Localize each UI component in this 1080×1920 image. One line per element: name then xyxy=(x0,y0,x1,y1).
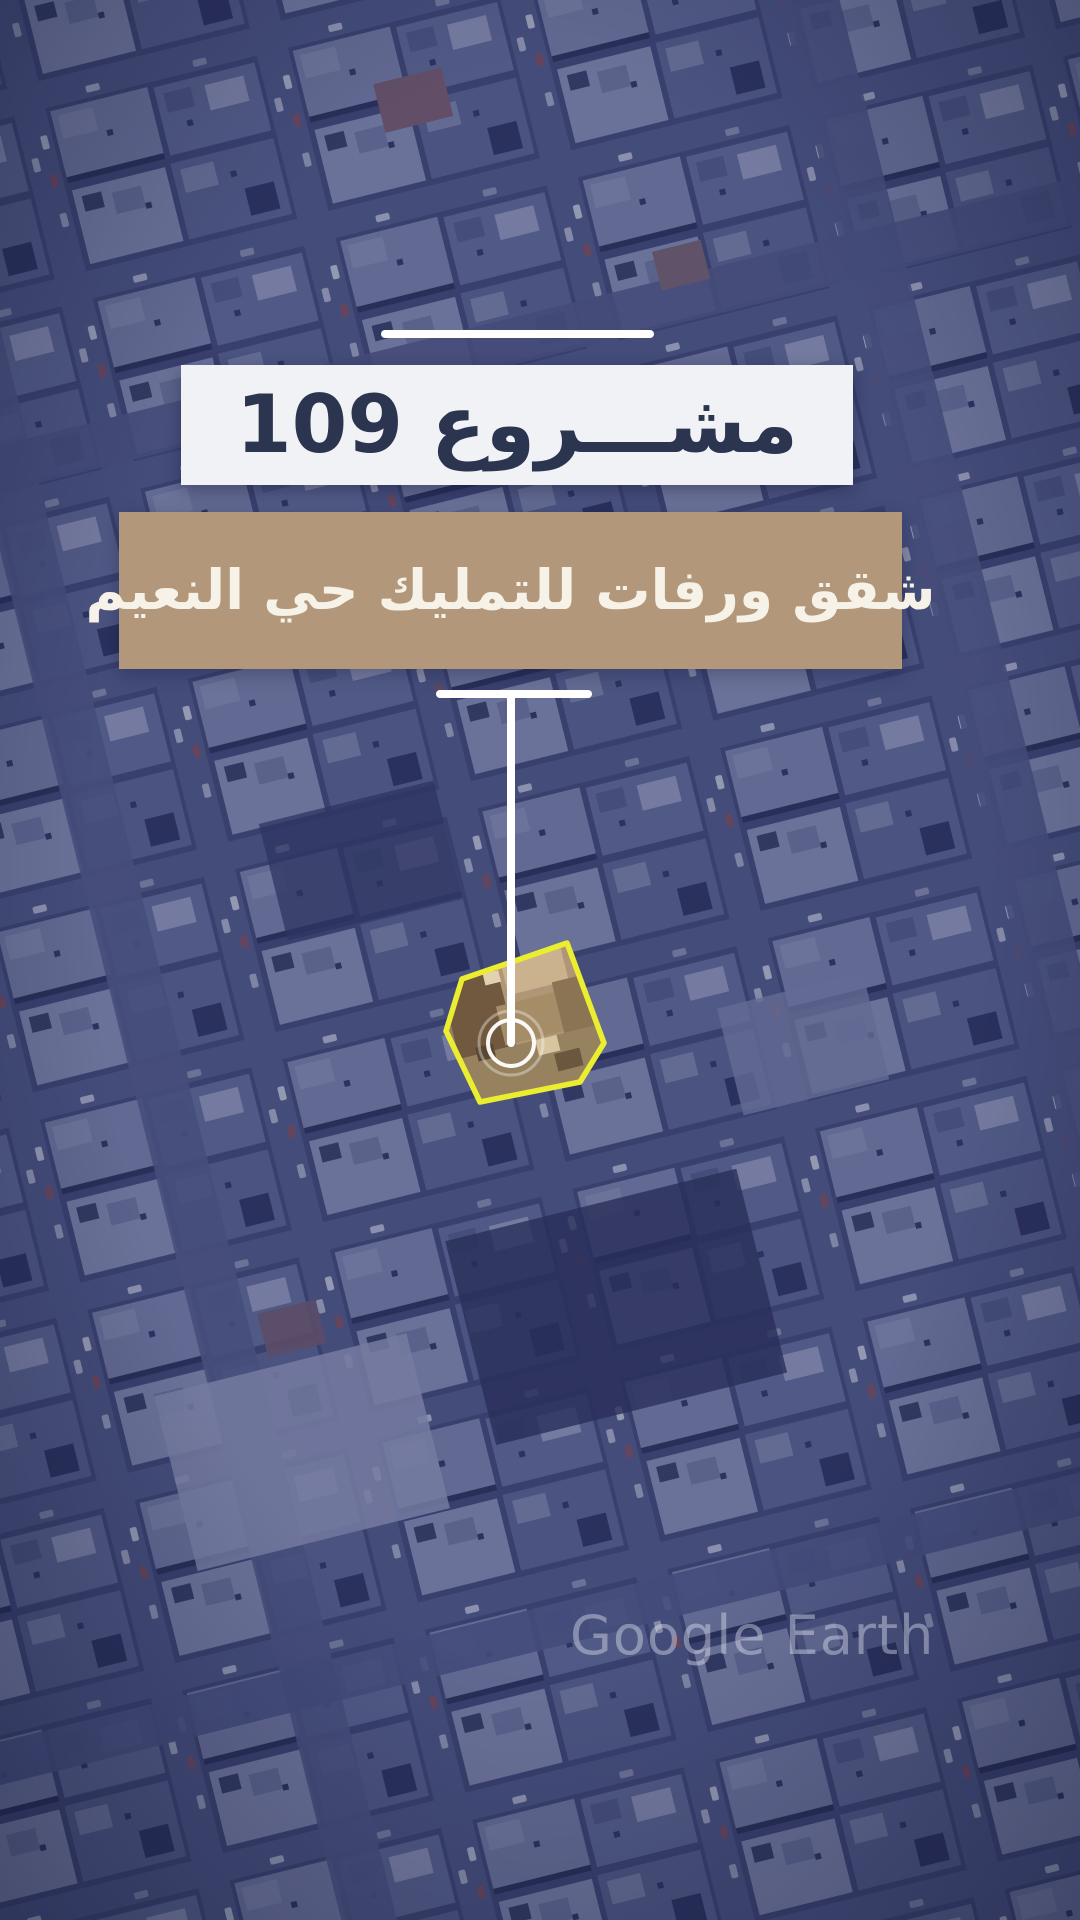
project-subtitle-text: شقق ورفات للتمليك حي النعيم xyxy=(85,563,935,618)
project-subtitle-banner: شقق ورفات للتمليك حي النعيم xyxy=(119,512,902,669)
video-frame: مشـــروع 109 شقق ورفات للتمليك حي النعيم… xyxy=(0,0,1080,1920)
google-earth-watermark: Google Earth xyxy=(570,1604,934,1667)
project-title-banner: مشـــروع 109 xyxy=(181,365,853,485)
project-title-text: مشـــروع 109 xyxy=(236,385,798,465)
